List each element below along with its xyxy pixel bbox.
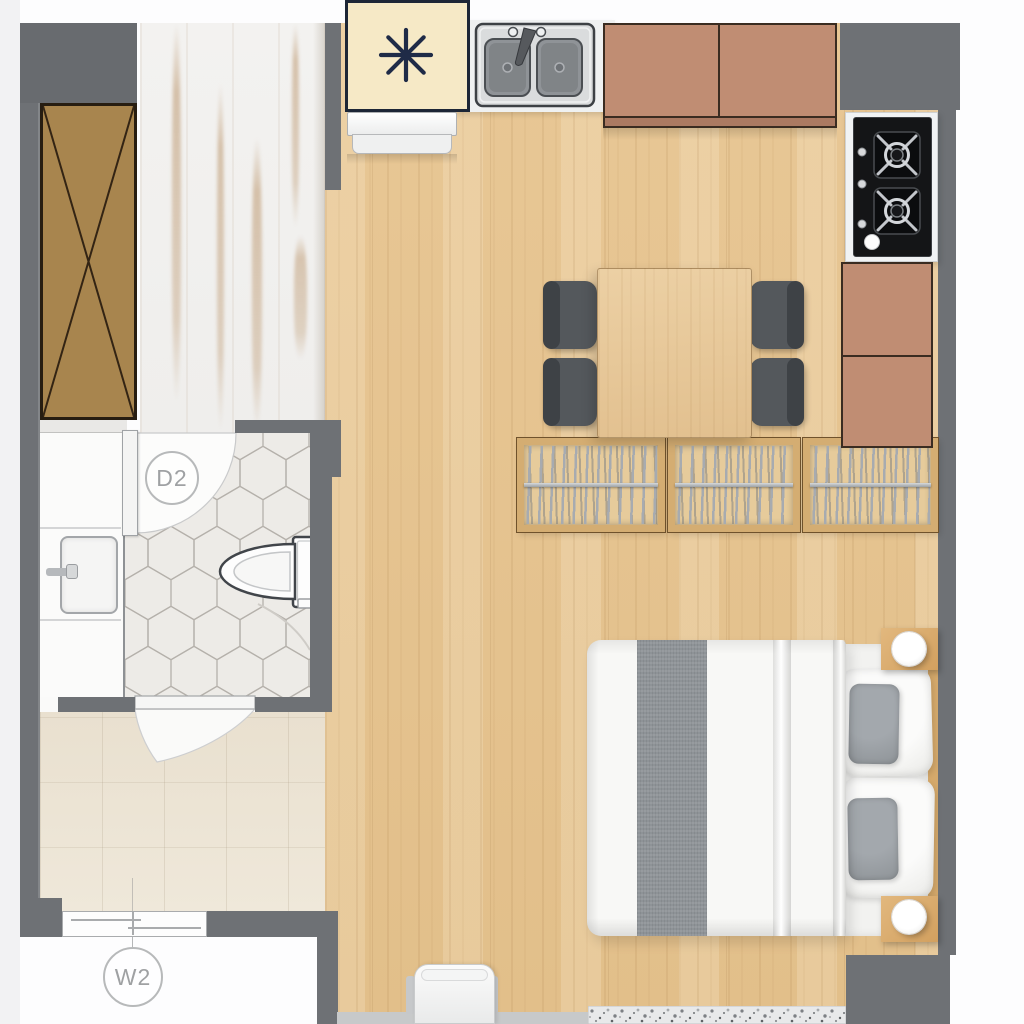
- duvet-fold: [773, 640, 791, 936]
- wardrobe: [40, 103, 137, 420]
- wall-left: [20, 103, 40, 935]
- kitchen-sink: [468, 18, 600, 114]
- storage-rack: [803, 438, 938, 532]
- floor-plan: D2 W2: [0, 0, 1024, 1024]
- bed-duvet: [587, 640, 846, 936]
- terrazzo-mat: [588, 1006, 846, 1024]
- bathroom-faucet-knob: [66, 564, 78, 579]
- plank-streak: [217, 83, 224, 431]
- storage-rack: [668, 438, 800, 532]
- duvet-stripe: [637, 640, 707, 936]
- desk-chair-headrest: [421, 969, 488, 981]
- cabinet-bottom-edge: [605, 116, 835, 126]
- balcony-door-swing: [133, 694, 259, 768]
- window-center-line: [132, 878, 133, 911]
- window-pane-line: [71, 919, 141, 921]
- plank-streak: [172, 23, 181, 403]
- window-pane-line: [128, 927, 201, 929]
- bed-pillow-gray: [847, 798, 898, 881]
- dining-chair: [750, 358, 804, 426]
- desk-chair: [414, 964, 495, 1024]
- fridge-floor-shadow: [347, 154, 457, 164]
- vanity-divider: [40, 619, 121, 621]
- cooktop-burners: [856, 120, 930, 254]
- chair-back: [543, 358, 560, 426]
- door-d2-leaf: [122, 430, 138, 536]
- wall-bottom-right: [846, 955, 950, 1024]
- chair-back: [787, 281, 804, 349]
- dining-chair: [750, 281, 804, 349]
- storage-rack: [517, 438, 665, 532]
- refrigerator-drawer: [347, 112, 457, 136]
- wall-bathroom-bottom-left: [56, 697, 135, 712]
- wall-balcony-right-vertical: [317, 937, 338, 1024]
- duvet-sheet-edge: [833, 640, 846, 936]
- asterisk-icon: [377, 26, 435, 84]
- window-w2-label-text: W2: [115, 964, 152, 991]
- cabinet-divider: [843, 355, 931, 357]
- plank-streak: [294, 235, 307, 360]
- lamp: [892, 900, 926, 934]
- plank-streak: [252, 138, 262, 431]
- wall-right: [938, 110, 956, 955]
- chair-back: [787, 358, 804, 426]
- refrigerator-drawer-lower: [352, 134, 452, 154]
- window-divider: [132, 912, 134, 935]
- cabinet-floor-shadow: [603, 128, 837, 140]
- upper-cabinets: [603, 23, 837, 128]
- vanity-divider: [40, 527, 121, 529]
- lamp: [892, 632, 926, 666]
- refrigerator: [345, 0, 470, 112]
- window-w2-label: W2: [103, 947, 163, 1007]
- wall-left-foot: [20, 898, 62, 937]
- dining-chair: [543, 281, 597, 349]
- wall-balcony-right: [207, 911, 338, 937]
- wardrobe-x-symbol: [43, 106, 134, 417]
- rack-rail: [524, 483, 658, 487]
- bathroom-top-strip: [38, 420, 127, 433]
- bed-pillow-gray: [848, 684, 899, 765]
- door-d2-label-text: D2: [156, 465, 187, 492]
- chair-back: [543, 281, 560, 349]
- wall-top-left: [20, 23, 137, 103]
- wall-bathroom-bottom-right: [255, 697, 332, 712]
- bathroom-vanity: [40, 433, 125, 697]
- hallway-edge-shadow: [313, 23, 325, 433]
- dining-table: [597, 268, 752, 438]
- wall-top-right: [840, 23, 960, 110]
- rack-rail: [675, 483, 793, 487]
- plank-streak: [292, 23, 299, 228]
- window-w2: [62, 911, 207, 937]
- door-d2-label: D2: [145, 451, 199, 505]
- dining-chair: [543, 358, 597, 426]
- bathroom-bottom-gap: [40, 697, 58, 712]
- hallway-floor: [140, 23, 325, 433]
- wall-hallway-divider: [325, 23, 341, 190]
- rack-rail: [810, 483, 931, 487]
- outside-margin: [0, 0, 20, 1024]
- cabinet-divider: [718, 25, 720, 126]
- wall-bathroom-corner: [325, 420, 341, 477]
- base-cabinets: [841, 262, 933, 448]
- burner-icon: [874, 188, 920, 234]
- burner-icon: [874, 132, 920, 178]
